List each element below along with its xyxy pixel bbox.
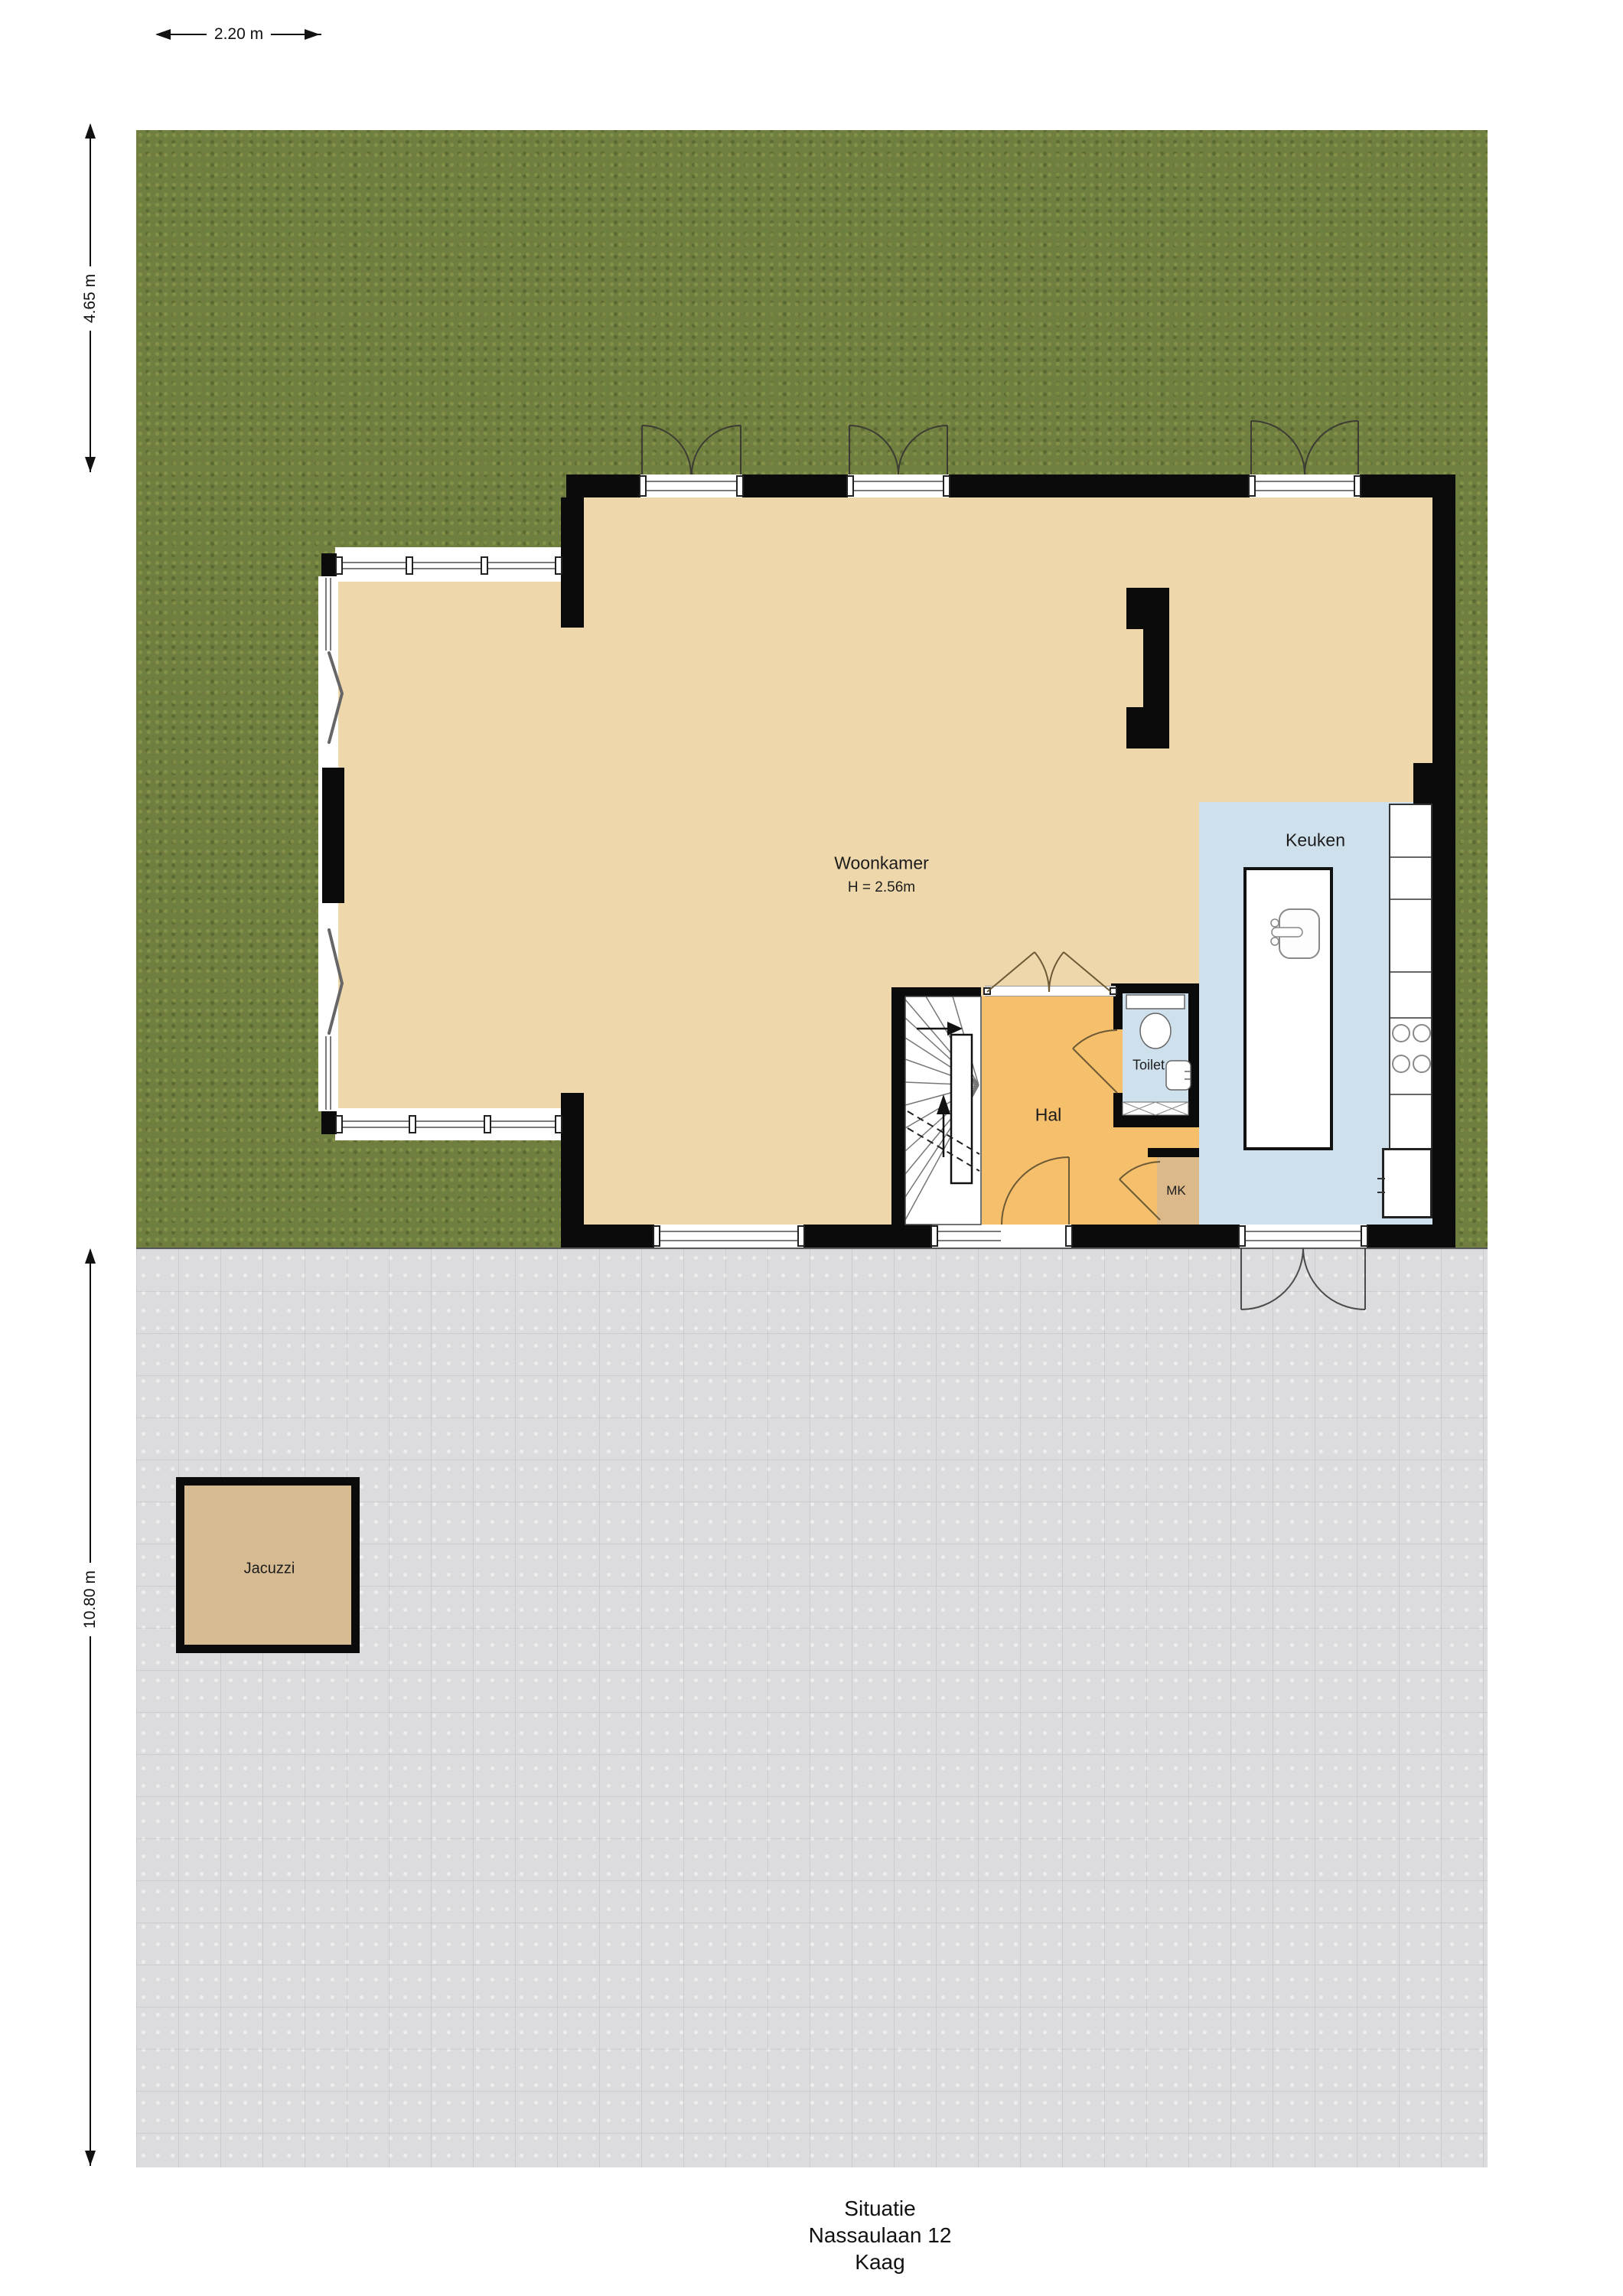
dim-terrace-depth-label: 10.80 m	[79, 1563, 102, 1636]
title-line-address: Nassaulaan 12	[727, 2222, 1033, 2249]
arrowhead-up-icon	[85, 1248, 96, 1264]
mk-door-swing	[1119, 1162, 1160, 1220]
bay-open-panes	[329, 653, 342, 1033]
title-line-situatie: Situatie	[727, 2195, 1033, 2222]
arrowhead-right-icon	[305, 29, 320, 40]
front-door-swing	[1002, 1157, 1069, 1225]
woonkamer-label: Woonkamer	[834, 853, 929, 874]
garden-door-swing-1	[642, 426, 741, 475]
arrowhead-up-icon	[85, 123, 96, 139]
toilet-sink	[1166, 1061, 1191, 1090]
hal-label: Hal	[1035, 1105, 1062, 1126]
toilet-cabinet	[1123, 1102, 1188, 1115]
mk-label: MK	[1166, 1183, 1186, 1199]
plan-linework	[0, 0, 1623, 2296]
kitchen-door-swing	[1241, 1247, 1365, 1309]
title-block: Situatie Nassaulaan 12 Kaag	[727, 2195, 1033, 2275]
toilet-label: Toilet	[1133, 1058, 1165, 1074]
arrowhead-down-icon	[85, 457, 96, 472]
title-line-city: Kaag	[727, 2249, 1033, 2275]
dim-garden-depth-label: 4.65 m	[79, 266, 102, 331]
keuken-label: Keuken	[1286, 830, 1345, 851]
cooktop-burners	[1393, 1025, 1430, 1072]
dim-line	[90, 1250, 91, 2166]
hal-double-door-swing	[987, 952, 1111, 992]
toilet-door-swing	[1073, 1030, 1117, 1093]
arrowhead-down-icon	[85, 2151, 96, 2166]
dim-garden-width-label: 2.20 m	[207, 23, 271, 46]
island-sink	[1271, 909, 1319, 958]
garden-door-swing-2	[849, 426, 947, 475]
garden-door-swing-3	[1251, 421, 1358, 475]
toilet-wc	[1126, 995, 1185, 1049]
woonkamer-height-label: H = 2.56m	[848, 879, 915, 896]
floor-plan-canvas: Jacuzzi	[0, 0, 1623, 2296]
arrowhead-left-icon	[155, 29, 171, 40]
